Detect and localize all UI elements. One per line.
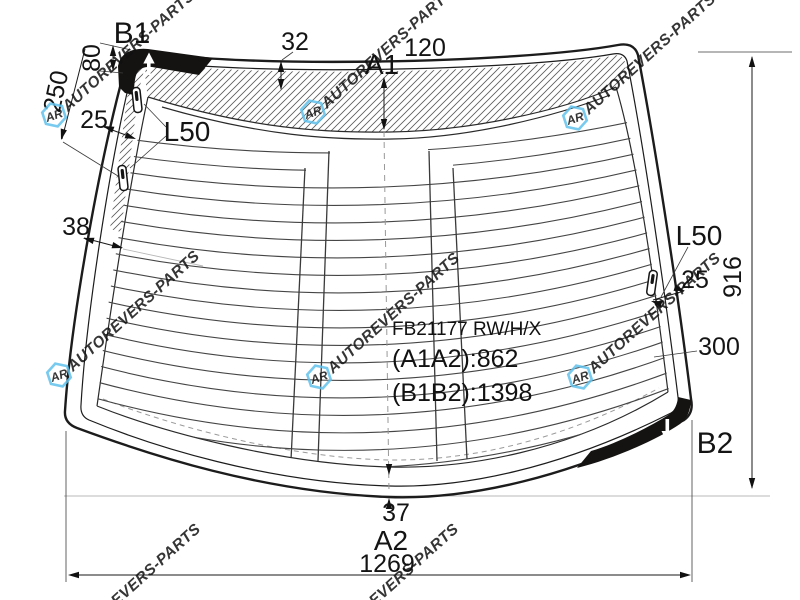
label-l50-right: L50 [676, 220, 723, 251]
dimension-arrowhead [112, 242, 124, 251]
label-l50-left: L50 [164, 116, 211, 147]
black-corner-bottom-right [577, 397, 691, 468]
watermark-brand-text: AUTOREVERS-PARTS [64, 247, 204, 375]
part-dim-b1b2: (B1B2):1398 [392, 379, 532, 407]
defroster-line [82, 174, 683, 223]
part-number: FB21177 RW/H/X [392, 319, 542, 340]
dimension-arrowhead [749, 478, 755, 489]
dimension-arrowhead [278, 61, 284, 72]
band-line-bottom [97, 392, 668, 467]
label-dim-37: 37 [382, 499, 410, 527]
watermark: ARAUTOREVERS-PARTS [46, 520, 204, 600]
clip-right [646, 270, 657, 296]
watermark-brand-text: AUTOREVERS-PARTS [65, 520, 205, 600]
clip-left-upper [132, 87, 143, 113]
defroster-line [82, 206, 683, 258]
label-dim-300: 300 [698, 333, 740, 361]
part-info: FB21177 RW/H/X (A1A2):862 (B1B2):1398 [392, 319, 542, 407]
dimension-arrowhead [680, 572, 691, 578]
label-dim-25-left: 25 [80, 106, 108, 134]
dimension-arrowhead [386, 464, 392, 475]
rear-glass-diagram: B1 80 250 25 L50 38 32 A1 120 L50 25 916… [0, 0, 800, 600]
dimension-arrowhead [68, 572, 79, 578]
part-dim-a1a2: (A1A2):862 [392, 345, 518, 373]
dimension-arrowhead [749, 56, 755, 67]
defroster-line [82, 190, 683, 240]
label-dim-38: 38 [62, 213, 90, 241]
watermark: ARAUTOREVERS-PARTS [45, 247, 203, 389]
label-dim-32: 32 [281, 28, 309, 56]
label-b2: B2 [697, 427, 734, 460]
defroster-grid [82, 110, 683, 468]
watermark: ARAUTOREVERS-PARTS [566, 249, 724, 391]
clip-left-lower [118, 165, 129, 191]
